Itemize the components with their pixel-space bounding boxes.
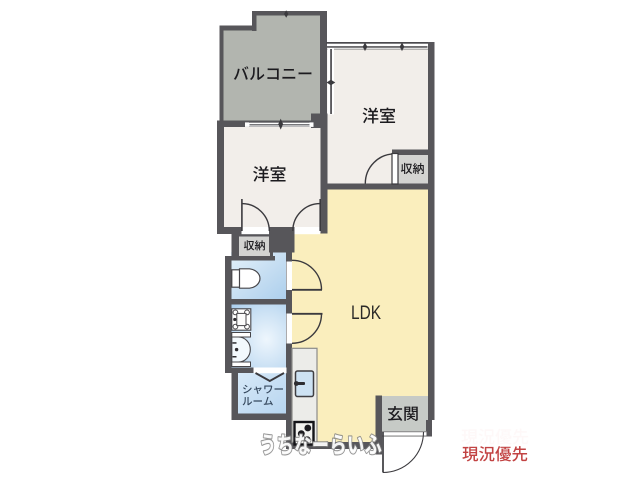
svg-text:LDK: LDK (351, 303, 381, 324)
